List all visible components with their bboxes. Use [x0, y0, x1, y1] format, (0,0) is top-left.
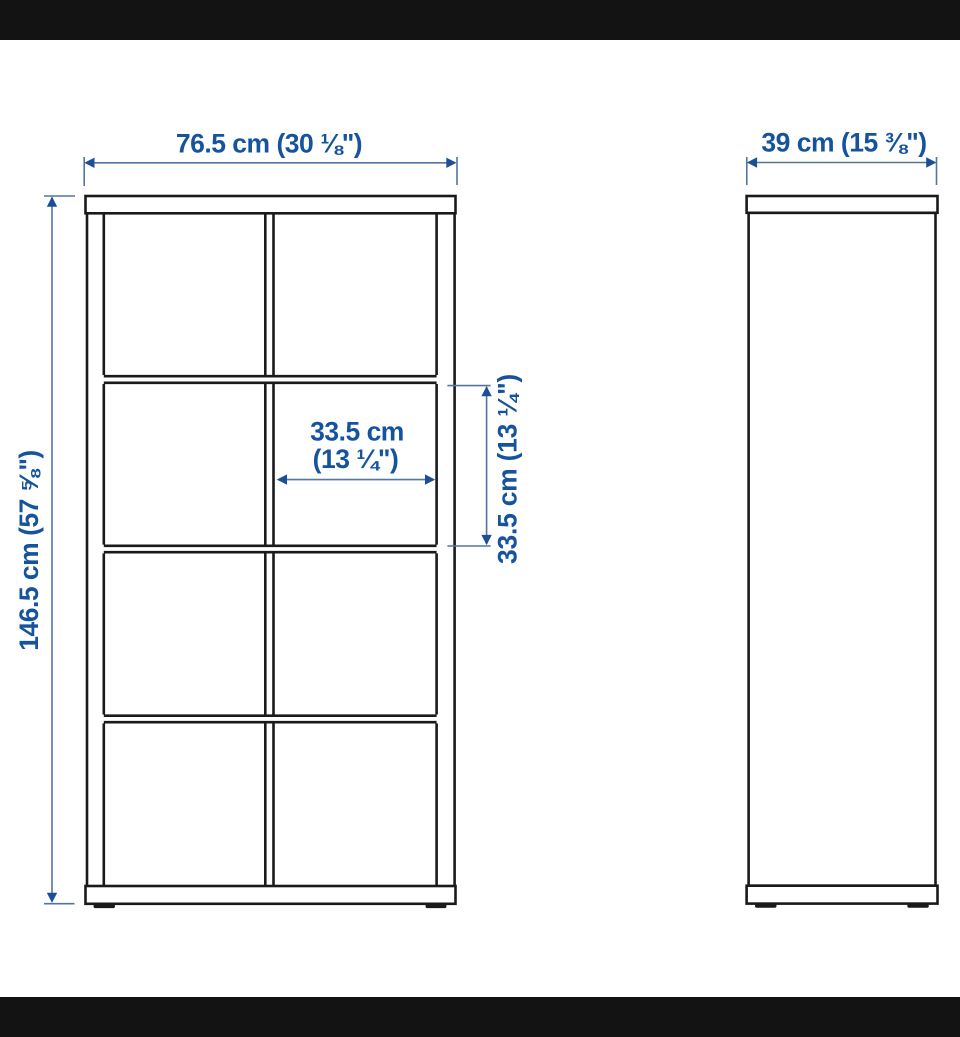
svg-text:(13 ¼"): (13 ¼"): [313, 444, 399, 474]
svg-text:33.5 cm (13 ¼"): 33.5 cm (13 ¼"): [493, 374, 523, 564]
svg-text:76.5 cm (30 ⅛"): 76.5 cm (30 ⅛"): [176, 129, 362, 159]
svg-text:39 cm (15 ⅜"): 39 cm (15 ⅜"): [761, 128, 926, 158]
svg-text:146.5 cm (57 ⅝"): 146.5 cm (57 ⅝"): [14, 450, 44, 651]
svg-text:33.5 cm: 33.5 cm: [310, 417, 404, 447]
